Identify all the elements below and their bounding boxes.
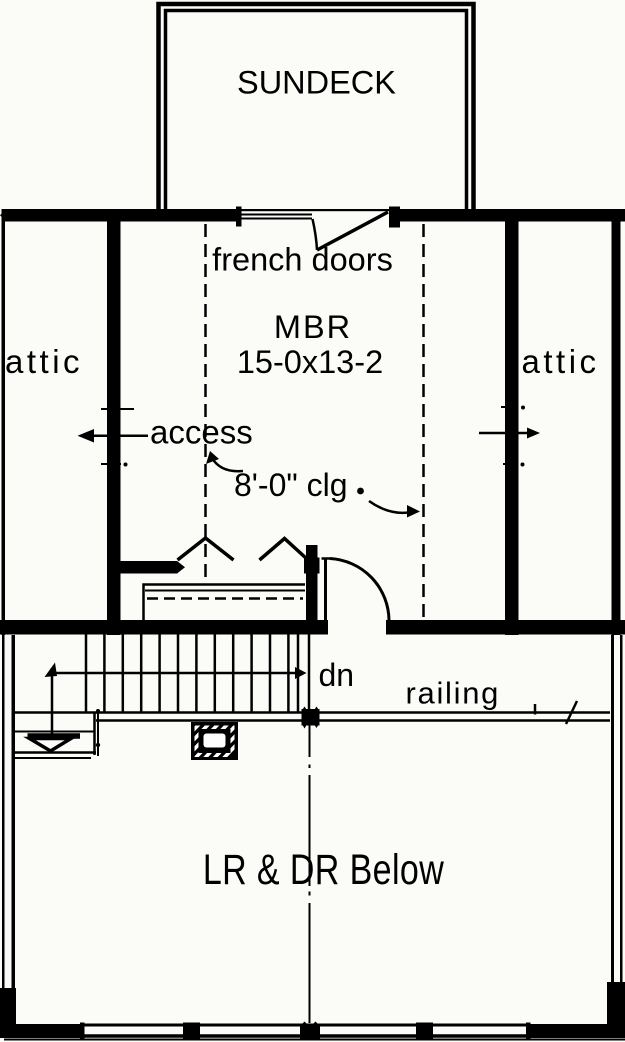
- svg-text:attic: attic: [522, 343, 600, 380]
- svg-text:attic: attic: [5, 343, 83, 380]
- svg-text:french doors: french doors: [212, 242, 393, 278]
- svg-text:SUNDECK: SUNDECK: [237, 65, 396, 101]
- svg-text:dn: dn: [319, 657, 355, 693]
- svg-text:MBR: MBR: [274, 309, 352, 345]
- svg-text:15-0x13-2: 15-0x13-2: [237, 344, 383, 380]
- svg-text:8'-0" clg: 8'-0" clg: [234, 467, 348, 503]
- svg-text:railing: railing: [406, 676, 501, 711]
- svg-text:access: access: [150, 414, 253, 451]
- svg-text:LR & DR Below: LR & DR Below: [203, 846, 444, 893]
